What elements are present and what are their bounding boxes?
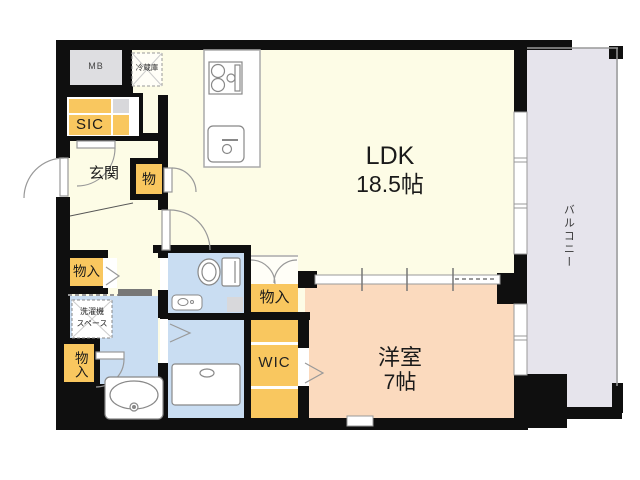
washer-space-line2: スペース bbox=[76, 318, 107, 330]
meter-box-label: MB bbox=[70, 59, 122, 73]
toilet-hand-basin bbox=[172, 295, 202, 310]
washroom-sliding-door bbox=[68, 289, 152, 296]
sic-label: SIC bbox=[69, 115, 111, 135]
entrance-step-line bbox=[70, 203, 133, 216]
wic-label: WIC bbox=[251, 352, 298, 374]
wall-outlet-box bbox=[347, 416, 373, 426]
storage-bath-label: 物入 bbox=[66, 346, 94, 382]
washbasin-vanity bbox=[172, 364, 240, 405]
western-room-size: 7帖 bbox=[384, 371, 417, 395]
western-room-label: 洋室 7帖 bbox=[330, 342, 470, 398]
ldk-size: 18.5帖 bbox=[356, 171, 424, 197]
storage-hall-label: 物入 bbox=[70, 262, 103, 282]
storage-hall-door-arrow bbox=[106, 267, 119, 285]
washer-space-line1: 洗濯機 bbox=[80, 306, 104, 318]
washer-space-label: 洗濯機 スペース bbox=[72, 304, 112, 332]
floorplan: LDK 18.5帖 洋室 7帖 バルコニー 玄関 SIC WIC MB 冷蔵庫 … bbox=[0, 0, 640, 480]
entrance-door bbox=[24, 158, 68, 198]
storage-entry-label: 物 bbox=[136, 168, 162, 190]
hall-ldk-door bbox=[162, 210, 210, 250]
storage-entry-door bbox=[164, 168, 196, 192]
ldk-label: LDK 18.5帖 bbox=[310, 138, 470, 202]
western-room-window bbox=[514, 304, 527, 375]
storage-ldk-label: 物入 bbox=[251, 287, 298, 309]
toilet bbox=[198, 258, 240, 286]
kitchen-sink bbox=[208, 126, 244, 162]
western-room-name: 洋室 bbox=[378, 345, 422, 370]
refrigerator-label: 冷蔵庫 bbox=[131, 62, 163, 75]
stove bbox=[209, 62, 242, 94]
ldk-name: LDK bbox=[366, 142, 415, 171]
ldk-window bbox=[514, 112, 527, 254]
balcony-label: バルコニー bbox=[556, 190, 580, 282]
storage-ldk-double-doors bbox=[251, 256, 298, 284]
bathtub bbox=[105, 377, 163, 419]
wic-door-arrow bbox=[305, 363, 323, 383]
washbasin-door-arrow bbox=[170, 324, 190, 342]
entrance-label: 玄関 bbox=[80, 165, 128, 183]
room-partition bbox=[315, 268, 500, 291]
